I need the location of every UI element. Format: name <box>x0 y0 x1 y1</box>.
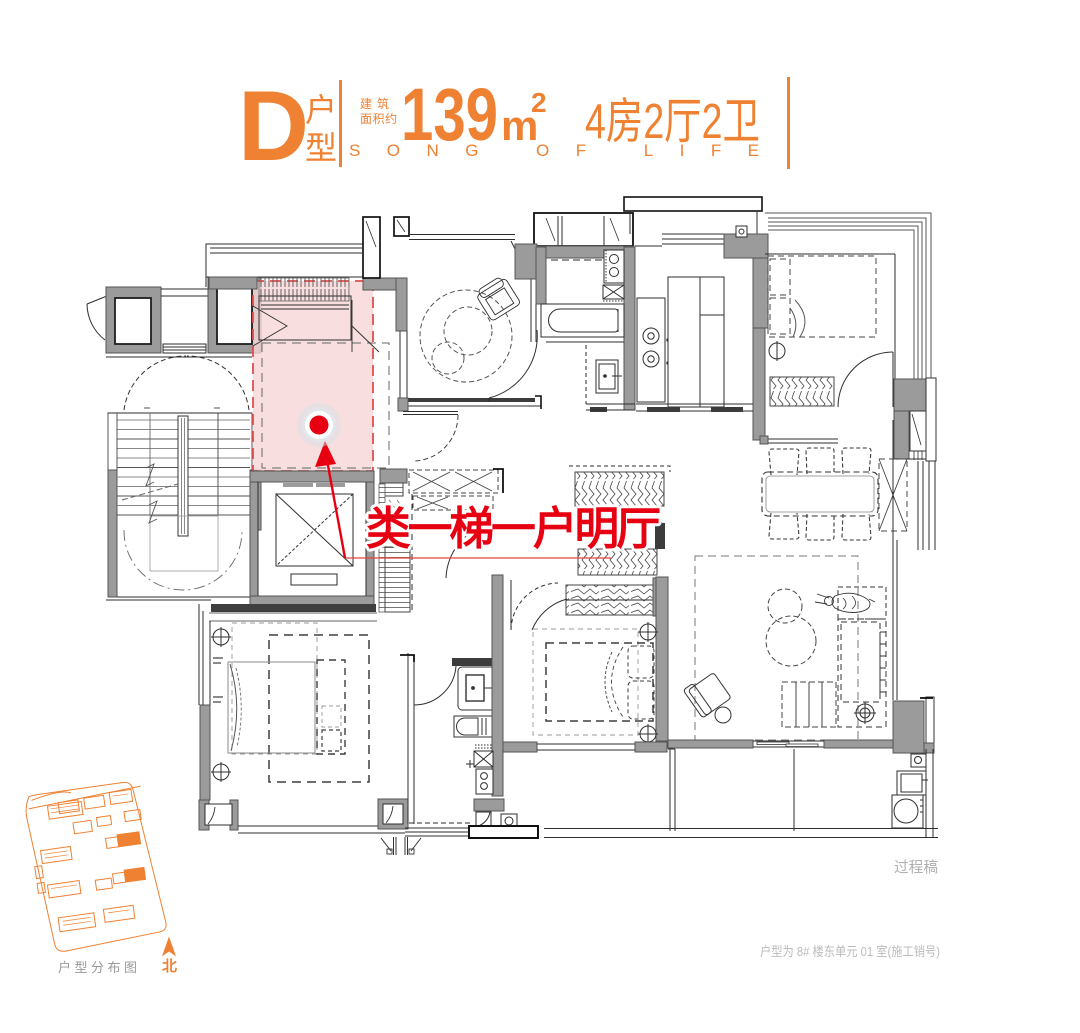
svg-text:户型分布图: 户型分布图 <box>58 960 141 975</box>
svg-text:D: D <box>238 70 309 181</box>
svg-text:139: 139 <box>401 73 498 156</box>
svg-text:面积约: 面积约 <box>360 111 398 126</box>
svg-text:型: 型 <box>305 130 337 166</box>
svg-text:过程稿: 过程稿 <box>894 859 938 876</box>
svg-text:建筑: 建筑 <box>360 96 394 111</box>
svg-text:类一梯一户明厅: 类一梯一户明厅 <box>366 503 660 554</box>
svg-text:4房2厅2卫: 4房2厅2卫 <box>585 95 760 149</box>
svg-text:户型为 8# 楼东单元 01 室(施工销号): 户型为 8# 楼东单元 01 室(施工销号) <box>760 944 940 959</box>
svg-text:户: 户 <box>305 92 337 128</box>
svg-text:2: 2 <box>531 87 547 118</box>
svg-text:北: 北 <box>162 958 177 975</box>
